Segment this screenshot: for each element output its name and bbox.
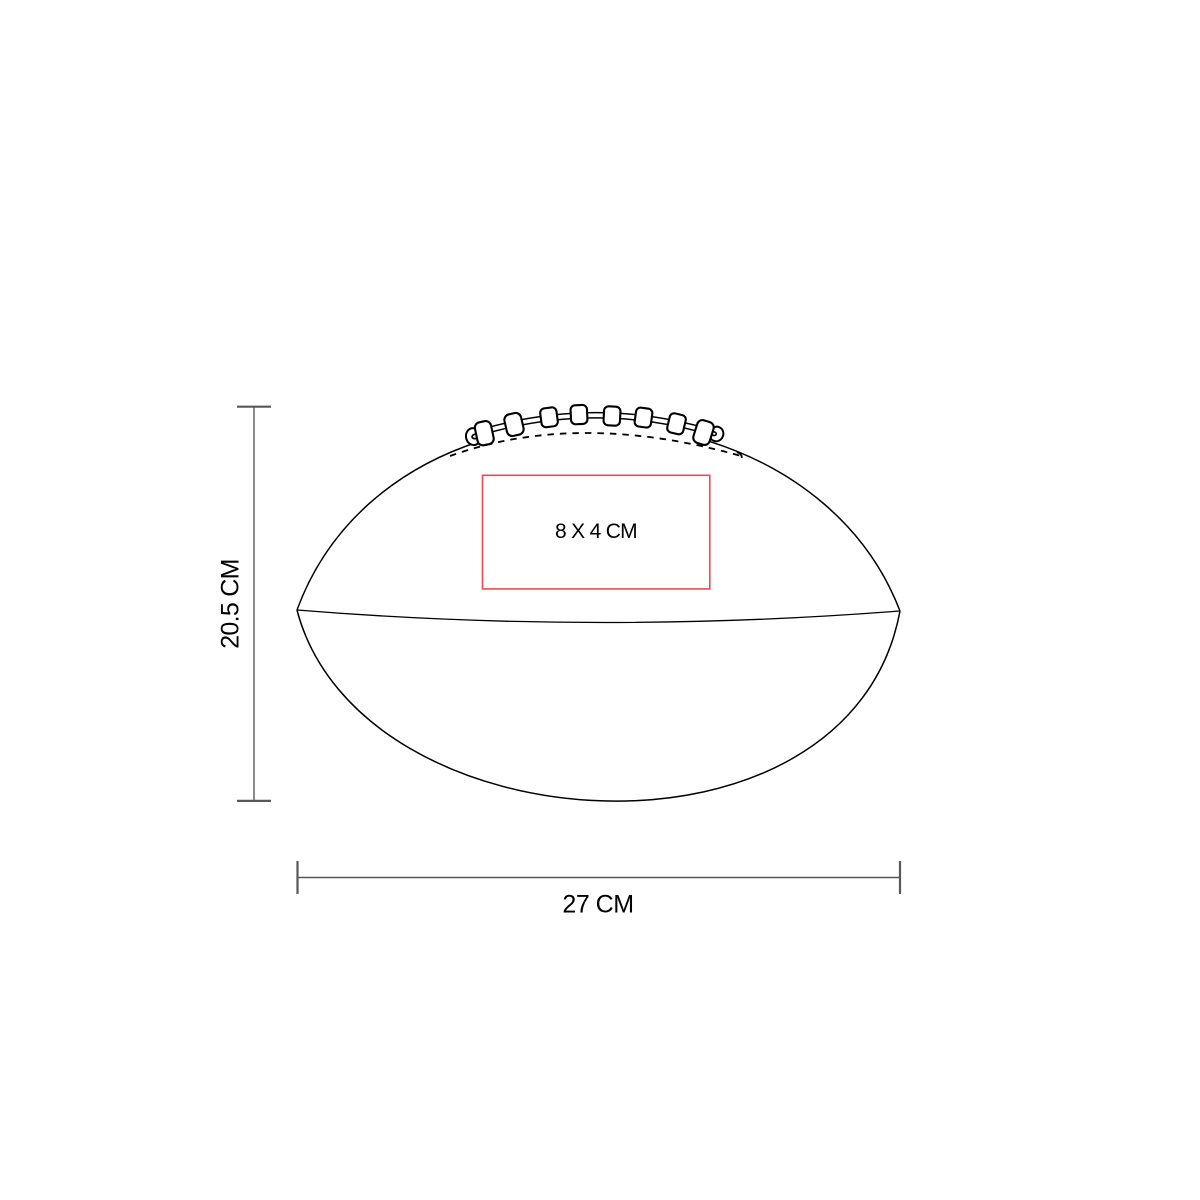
svg-text:8 X 4 CM: 8 X 4 CM	[555, 520, 637, 543]
svg-text:27 CM: 27 CM	[562, 891, 633, 919]
svg-text:20.5 CM: 20.5 CM	[217, 559, 245, 649]
